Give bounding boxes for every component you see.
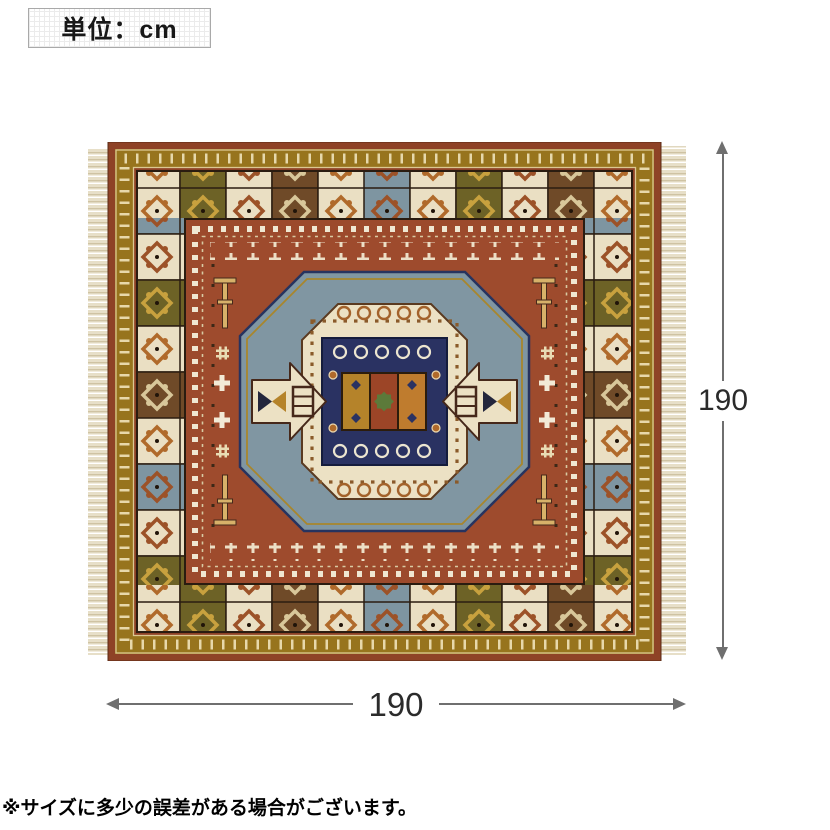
rug-fringe-right [661,146,686,655]
rug-fringe-left [88,148,108,655]
arrow-up-icon [716,141,728,154]
height-dimension-label: 190 [688,381,758,421]
width-dimension-label: 190 [353,683,439,725]
size-diagram: 単位：cm [0,0,830,830]
unit-label: 単位：cm [61,10,177,46]
rug-illustration [88,142,688,661]
rug-image [88,142,688,661]
arrow-right-icon [673,698,686,710]
unit-box: 単位：cm [28,8,211,48]
note-text: ※サイズに多少の誤差がある場合がございます。 [2,793,417,820]
arrow-down-icon [716,647,728,660]
arrow-left-icon [106,698,119,710]
